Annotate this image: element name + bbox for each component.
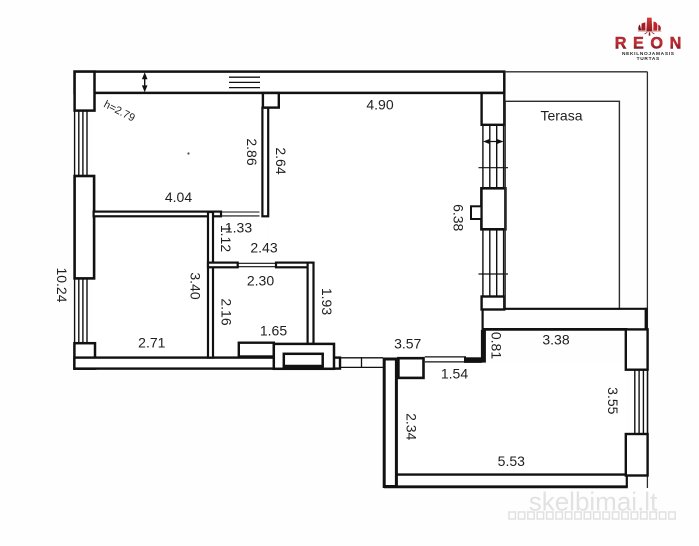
svg-text:1.93: 1.93 (319, 288, 335, 315)
svg-text:3.40: 3.40 (188, 272, 204, 299)
svg-text:0.81: 0.81 (488, 332, 504, 359)
svg-text:6.38: 6.38 (451, 204, 467, 231)
svg-text:2.64: 2.64 (273, 147, 289, 174)
svg-text:2.43: 2.43 (250, 239, 277, 255)
svg-text:1.54: 1.54 (441, 365, 468, 381)
svg-text:4.04: 4.04 (165, 189, 192, 205)
svg-text:3.38: 3.38 (542, 331, 569, 347)
svg-text:3.57: 3.57 (394, 335, 421, 351)
svg-text:TURTAS: TURTAS (637, 56, 660, 62)
svg-text:Terasa: Terasa (540, 108, 582, 124)
svg-text:REON: REON (615, 34, 688, 52)
svg-text:1.12: 1.12 (218, 225, 234, 252)
svg-text:2.30: 2.30 (247, 272, 274, 288)
svg-text:2.16: 2.16 (219, 298, 235, 325)
svg-text:3.55: 3.55 (605, 387, 621, 414)
svg-text:10.24: 10.24 (54, 267, 70, 302)
svg-text:1.65: 1.65 (260, 322, 287, 338)
svg-text:4.90: 4.90 (366, 96, 393, 112)
svg-text:5.53: 5.53 (498, 453, 525, 469)
svg-text:2.86: 2.86 (244, 138, 260, 165)
svg-text:2.34: 2.34 (404, 413, 420, 440)
svg-text:2.71: 2.71 (138, 335, 165, 351)
